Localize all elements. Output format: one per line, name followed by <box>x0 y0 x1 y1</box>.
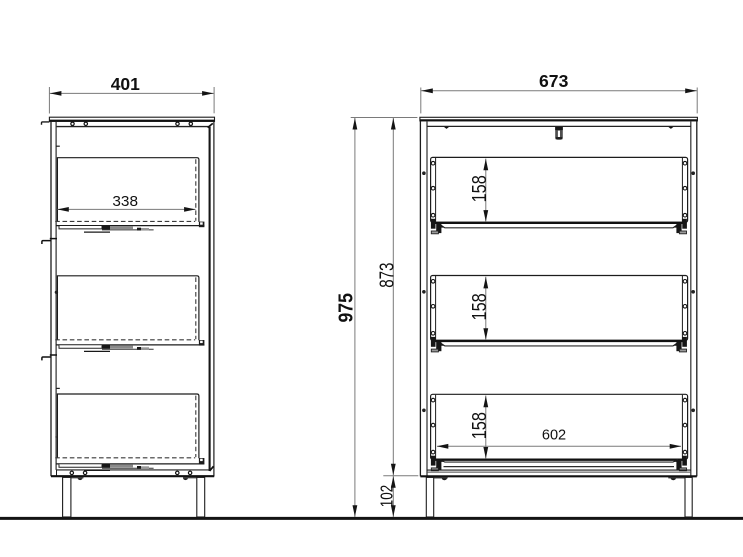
svg-text:158: 158 <box>469 412 491 439</box>
svg-text:673: 673 <box>539 71 569 91</box>
svg-text:158: 158 <box>469 175 491 202</box>
svg-text:102: 102 <box>376 485 396 507</box>
svg-text:338: 338 <box>112 194 138 210</box>
svg-text:401: 401 <box>111 74 140 94</box>
svg-text:975: 975 <box>335 293 357 323</box>
svg-text:873: 873 <box>377 263 399 288</box>
svg-text:602: 602 <box>542 428 566 444</box>
svg-text:158: 158 <box>469 293 491 320</box>
